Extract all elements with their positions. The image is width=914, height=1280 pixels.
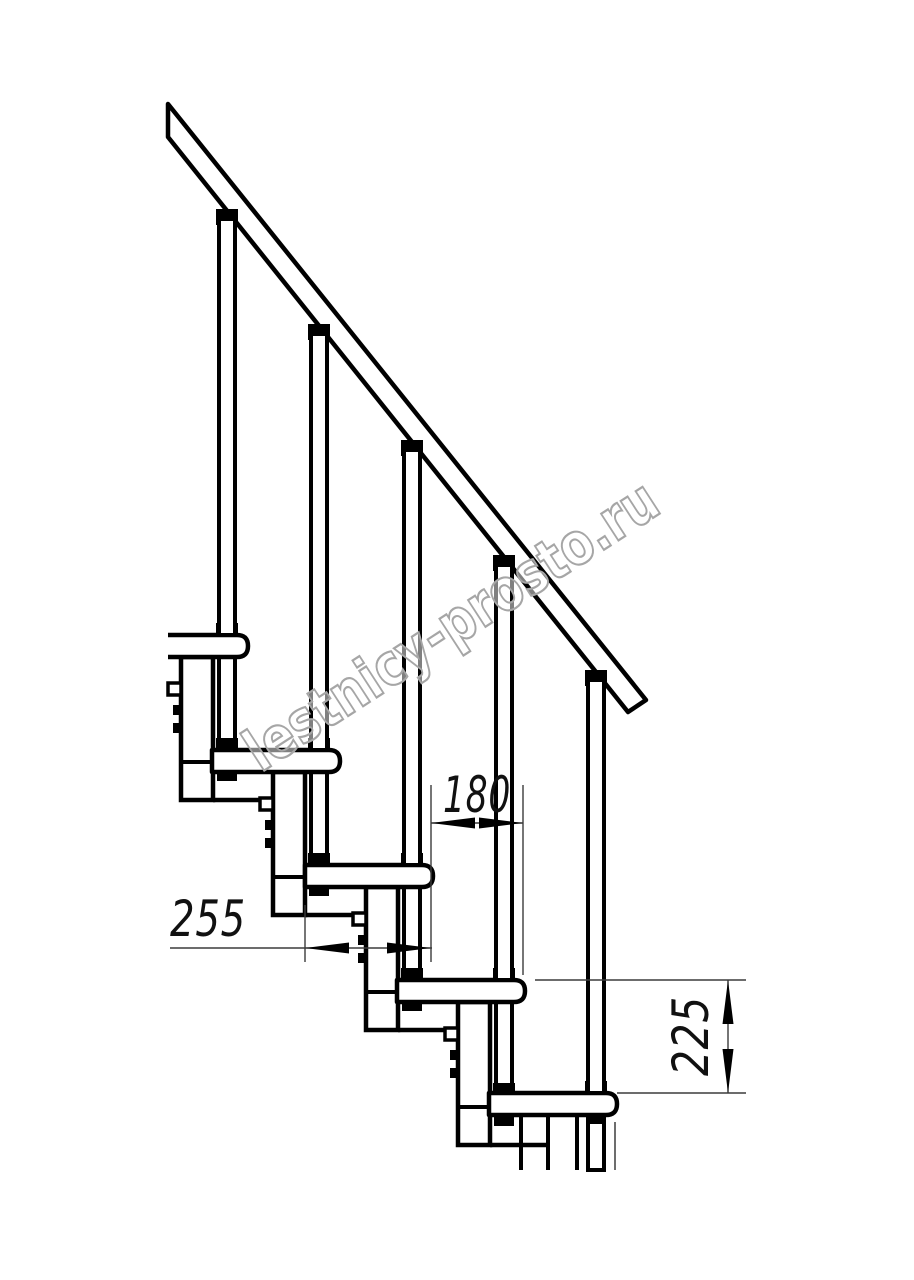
dim-rise-label: 225 [662,996,720,1076]
dim-depth-label: 255 [170,890,246,948]
support-bolt [450,1050,459,1060]
rod-landing-collar [308,853,330,865]
support-box [181,657,213,800]
support-bolt [450,1068,459,1078]
baluster-rod-lower [404,887,420,980]
rod-nut-under-tread [402,1002,422,1011]
tread-fill [168,635,248,657]
baluster-rod-lower [311,772,327,865]
baluster-rod-lower [496,1002,512,1095]
baluster [219,219,235,635]
dimension-arrow [723,980,734,1024]
support-bolt [173,723,182,733]
support-bolt [265,820,274,830]
baluster-rod-lower [219,657,235,750]
drawing-page: lestnicy-prosto.ru 180 255 225 [0,0,914,1280]
support-bolt [358,953,367,963]
rod-landing-collar [216,738,238,750]
rod-landing-collar [493,1083,515,1095]
rod-nut-under-tread [494,1117,514,1126]
staircase-technical-drawing: lestnicy-prosto.ru 180 255 225 [0,0,914,1280]
support-tab [168,683,181,695]
support-tab [353,913,366,925]
rod-landing-collar [401,968,423,980]
tread [397,980,525,1002]
tread [489,1093,617,1115]
rod-nut-under-tread [217,772,237,781]
dim-run-label: 180 [443,766,511,824]
baluster [588,680,604,1093]
support-bolt [358,935,367,945]
support-box [273,772,305,915]
support-bolt [173,705,182,715]
rod-nut-under-tread [309,887,329,896]
support-tab [445,1028,458,1040]
support-bolt [265,838,274,848]
support-tab [260,798,273,810]
dimension-arrow [305,943,349,954]
support-box [458,1002,490,1145]
tread [305,865,433,887]
support-box [366,887,398,1030]
rod-nut-under-tread [586,1115,606,1124]
dimension-arrow [723,1049,734,1093]
